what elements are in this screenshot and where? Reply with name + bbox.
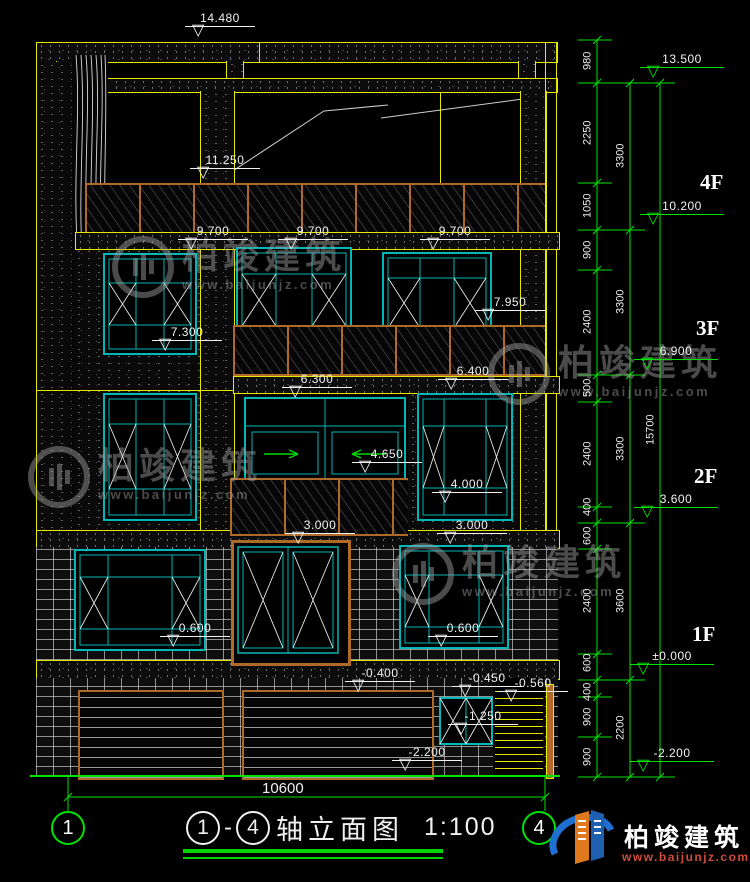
level-marker-6900: 6.900▽: [634, 344, 718, 360]
elev-marker-neg2200-draw: -2.200▽: [392, 745, 462, 761]
watermark-url-text: www.baijunjz.com: [182, 277, 334, 292]
level-marker-10200: 10.200▽: [640, 199, 724, 215]
elev-marker-9700-c: 9.700▽: [420, 224, 490, 240]
floor-label-2f: 2F: [694, 464, 717, 489]
company-logo-url: www.baijunjz.com: [622, 850, 750, 864]
watermark-logo-icon: [392, 543, 454, 605]
company-logo-icon: [545, 800, 621, 876]
dim-2400-b: 2400: [580, 430, 595, 478]
elev-marker-7300: 7.300▽: [152, 325, 222, 341]
elev-marker-4000: 4.000▽: [432, 477, 502, 493]
watermark-cn-text: 柏竣建筑: [182, 235, 346, 276]
dim-2400-a: 2400: [580, 298, 595, 346]
title-dash: -: [224, 814, 232, 842]
roof-column-stub-right: [518, 61, 536, 78]
elev-marker-neg0400: -0.400▽: [345, 666, 415, 682]
drawing-title: 1 - 4 轴立面图 1:100: [186, 808, 497, 847]
elev-marker-11250: 11.250▽: [190, 153, 260, 169]
dim-1050: 1050: [580, 182, 595, 230]
dim-3600: 3600: [613, 571, 628, 631]
dim-2400-c: 2400: [580, 577, 595, 625]
elev-marker-0600-a: 0.600▽: [160, 621, 230, 637]
sliding-door-2f: [244, 397, 406, 482]
ground-line: [30, 775, 560, 777]
title-axis-circle-4: 4: [236, 811, 270, 845]
balcony-door-3f-right: [382, 252, 492, 334]
level-marker-3600: 3.600▽: [634, 492, 718, 508]
dim-3300-b: 3300: [613, 272, 628, 332]
axis-bubble-4-label: 4: [533, 817, 544, 840]
garage-door-left: [78, 690, 224, 780]
elev-marker-7950: 7.950▽: [475, 295, 545, 311]
axis-bubble-1-label: 1: [62, 817, 73, 840]
company-logo-name: 柏竣建筑: [624, 818, 744, 854]
dim-600-a: 600: [580, 516, 595, 556]
dim-2200: 2200: [613, 698, 628, 758]
dim-2250: 2250: [580, 109, 595, 157]
title-axis-4-label: 4: [247, 816, 259, 840]
axis-bubble-1: 1: [51, 811, 85, 845]
stair-stringer: [546, 684, 554, 779]
elev-marker-14480: 14.480▽: [185, 11, 255, 27]
title-underline-thick: [183, 849, 443, 853]
level-marker-neg2200: -2.200▽: [630, 746, 714, 762]
level-marker-13500: 13.500▽: [640, 52, 724, 68]
watermark-cn-text: 柏竣建筑: [462, 542, 626, 583]
title-underline-thin: [183, 857, 443, 859]
title-axis-circle-1: 1: [186, 811, 220, 845]
floor-label-3f: 3F: [696, 316, 719, 341]
title-name: 轴立面图: [276, 808, 404, 847]
elev-marker-9700-a: 9.700▽: [178, 224, 248, 240]
elev-marker-6300: 6.300▽: [282, 372, 352, 388]
watermark-logo-icon: [112, 236, 174, 298]
floor-label-1f: 1F: [692, 622, 715, 647]
dim-900-c: 900: [580, 735, 595, 779]
corner-line-4f: [440, 92, 441, 185]
elev-marker-6400: 6.400▽: [438, 364, 508, 380]
door-1f-double: [237, 546, 339, 654]
watermark-left-middle: 柏竣建筑 www.baijunjz.com: [28, 446, 262, 508]
stair-steps: [495, 690, 543, 776]
elev-marker-neg1250: -1.250▽: [448, 709, 518, 725]
dim-980: 980: [580, 37, 595, 85]
title-axis-1-label: 1: [197, 816, 209, 840]
elev-marker-0600-b: 0.600▽: [428, 621, 498, 637]
elev-marker-9700-b: 9.700▽: [278, 224, 348, 240]
roof-slab-joint: [259, 42, 260, 62]
elev-marker-3000-b: 3.000▽: [437, 518, 507, 534]
elev-marker-4650: 4.650▽: [352, 447, 422, 463]
dim-3300-c: 3300: [613, 419, 628, 479]
roof-slab-top: [36, 42, 558, 63]
watermark-top-center: 柏竣建筑 www.baijunjz.com: [112, 236, 346, 298]
dim-500: 500: [580, 364, 595, 412]
dim-3300-a: 3300: [613, 126, 628, 186]
window-2f-right: [417, 393, 513, 521]
floor-line-3f-left: [36, 390, 233, 391]
elev-marker-3000-a: 3.000▽: [285, 518, 355, 534]
cad-elevation-canvas: 14.480▽ 11.250▽ 9.700▽ 9.700▽ 9.700▽ 7.9…: [0, 0, 750, 882]
dim-900-a: 900: [580, 226, 595, 274]
watermark-url-text: www.baijunjz.com: [98, 487, 250, 502]
watermark-cn-text: 柏竣建筑: [98, 445, 262, 486]
watermark-logo-icon: [28, 446, 90, 508]
title-scale: 1:100: [424, 813, 497, 842]
dim-900-b: 900: [580, 695, 595, 739]
dim-15700-total: 15700: [643, 395, 658, 465]
level-marker-0000: ±0.000▽: [630, 649, 714, 665]
floor-label-4f: 4F: [700, 170, 723, 195]
elev-marker-neg0560: -0.560▽: [498, 676, 568, 692]
column-right: [520, 91, 547, 532]
bottom-width-dim: 10600: [262, 780, 304, 797]
roof-column-stub-mid: [226, 61, 244, 78]
